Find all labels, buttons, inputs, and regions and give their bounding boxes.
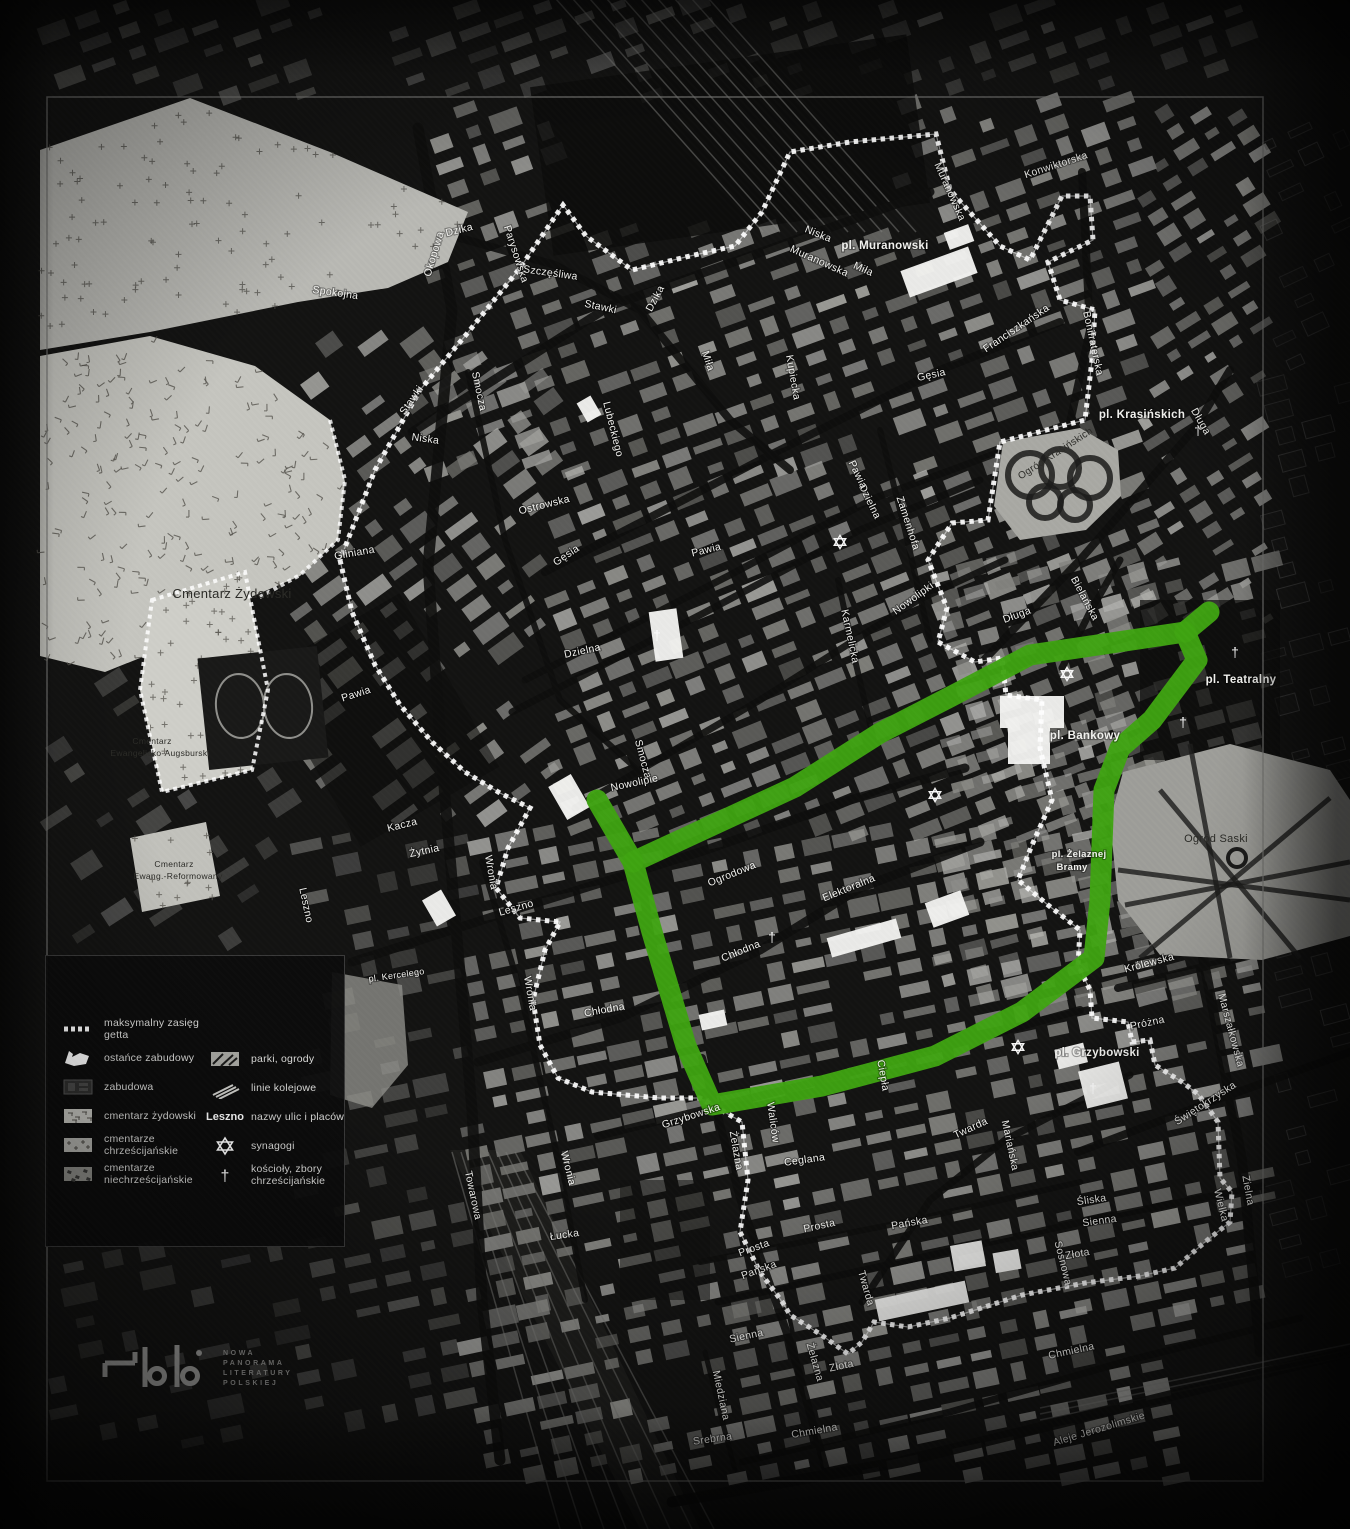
nplp-logo-glyph (95, 1342, 213, 1394)
legend-item-label: kościoły, zbory chrześcijańskie (251, 1163, 345, 1187)
area-label: Ewang.-Reformowany (133, 871, 222, 881)
legend-christian-cemeteries-icon (62, 1134, 94, 1156)
area-label: Ogród Saski (1184, 833, 1248, 845)
nplp-logo-text-line: POLSKIEJ (223, 1380, 293, 1387)
legend-buildings-icon (62, 1076, 94, 1098)
street-label: pl. Grzybowski (1054, 1047, 1139, 1059)
legend-item-label: cmentarze niechrześcijańskie (104, 1162, 222, 1186)
legend-church-icon: † (209, 1164, 241, 1186)
legend-item: cmentarz żydowski (62, 1101, 222, 1130)
legend-jewish-cemetery-icon (62, 1105, 94, 1127)
svg-text:†: † (221, 1168, 230, 1185)
legend-item: †kościoły, zbory chrześcijańskie (209, 1160, 345, 1189)
legend-item: cmentarze chrześcijańskie (62, 1130, 222, 1159)
legend-railways-icon (209, 1077, 241, 1099)
street-label: pl. Krasińskich (1099, 409, 1185, 421)
legend-item-label: nazwy ulic i placów (251, 1111, 344, 1123)
area-label: Cmentarz Żydowski (172, 586, 291, 601)
legend-non-christian-cemeteries-icon (62, 1163, 94, 1185)
legend-icon-cell (62, 1163, 94, 1185)
legend-icon-cell: Leszno (209, 1111, 241, 1123)
svg-text:†: † (653, 627, 661, 643)
legend-column-right: parki, ogrodylinie kolejoweLesznonazwy u… (209, 1044, 345, 1189)
legend-item: maksymalny zasięg getta (62, 1014, 222, 1043)
legend-ghetto-extent-icon (62, 1018, 94, 1040)
nplp-logo-text-line: PANORAMA (223, 1360, 293, 1367)
legend-icon-cell (62, 1105, 94, 1127)
svg-text:†: † (1089, 1080, 1097, 1096)
legend-item: cmentarze niechrześcijańskie (62, 1159, 222, 1188)
street-label: pl. Bankowy (1050, 730, 1121, 742)
nplp-logo-text-line: NOWA (223, 1350, 293, 1357)
legend-item-label: ostańce zabudowy (104, 1052, 194, 1064)
svg-text:†: † (1179, 714, 1187, 730)
legend-item-label: cmentarz żydowski (104, 1110, 196, 1122)
nplp-logo: NOWAPANORAMALITERATURYPOLSKIEJ (95, 1318, 345, 1418)
legend-item: synagogi (209, 1131, 345, 1160)
legend-icon-cell (209, 1048, 241, 1070)
legend-icon-cell (62, 1076, 94, 1098)
legend-item-label: linie kolejowe (251, 1082, 316, 1094)
map-canvas: ††††††SpokojnaOkopowaDzikaDzikaParysowsk… (0, 0, 1350, 1529)
legend-item-label: maksymalny zasięg getta (104, 1017, 222, 1041)
nplp-logo-text: NOWAPANORAMALITERATURYPOLSKIEJ (223, 1350, 293, 1387)
area-label: Cmentarz (154, 859, 193, 869)
legend-parks-icon (209, 1048, 241, 1070)
area-label: Cmentarz (132, 736, 171, 746)
legend-item-label: zabudowa (104, 1081, 153, 1093)
street-label: Bramy (1056, 862, 1087, 873)
legend-synagogue-icon (209, 1135, 241, 1157)
legend-icon-cell (62, 1047, 94, 1069)
legend-item: Lesznonazwy ulic i placów (209, 1102, 345, 1131)
legend: maksymalny zasięg gettaostańce zabudowyz… (45, 955, 345, 1247)
street-label: pl. Muranowski (841, 240, 928, 252)
legend-column-left: maksymalny zasięg gettaostańce zabudowyz… (62, 1014, 222, 1188)
legend-icon-cell (62, 1018, 94, 1040)
legend-icon-cell (209, 1135, 241, 1157)
legend-item-label: cmentarze chrześcijańskie (104, 1133, 222, 1157)
legend-item: linie kolejowe (209, 1073, 345, 1102)
legend-item-label: parki, ogrody (251, 1053, 314, 1065)
svg-text:†: † (1231, 644, 1239, 660)
legend-item: parki, ogrody (209, 1044, 345, 1073)
legend-item: ostańce zabudowy (62, 1043, 222, 1072)
map-poster: ††††††SpokojnaOkopowaDzikaDzikaParysowsk… (0, 0, 1350, 1529)
street-label: pl. Teatralny (1206, 674, 1277, 686)
legend-icon-cell: † (209, 1164, 241, 1186)
legend-item-label: synagogi (251, 1140, 295, 1152)
legend-item: zabudowa (62, 1072, 222, 1101)
area-label: Ewangelicko-Augsburski (110, 748, 209, 758)
svg-text:†: † (768, 929, 776, 945)
nplp-logo-text-line: LITERATURY (223, 1370, 293, 1377)
legend-icon-cell (209, 1077, 241, 1099)
legend-street-name-sample: Leszno (206, 1111, 244, 1123)
street-label: pl. Żelaznej (1052, 849, 1107, 860)
legend-icon-cell (62, 1134, 94, 1156)
legend-remnant-icon (62, 1047, 94, 1069)
